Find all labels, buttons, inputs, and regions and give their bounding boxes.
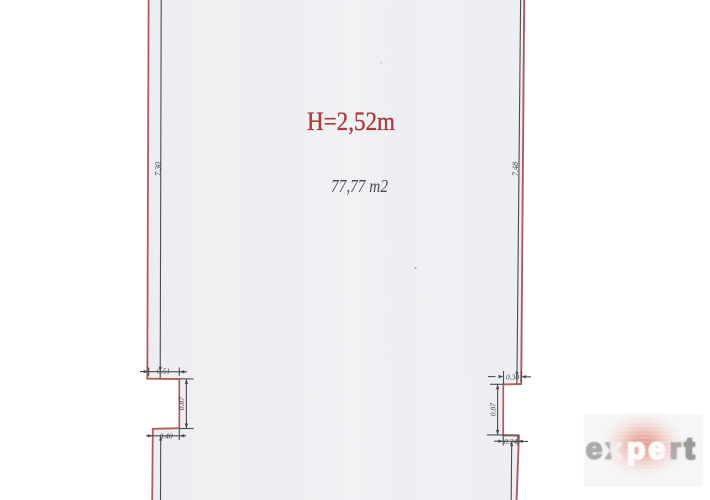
svg-text:p: p <box>627 433 645 466</box>
svg-text:7.48: 7.48 <box>511 162 520 176</box>
svg-text:7.30: 7.30 <box>154 162 163 176</box>
svg-text:77,77 m2: 77,77 m2 <box>331 176 388 196</box>
svg-text:0.87: 0.87 <box>177 397 186 410</box>
svg-text:e: e <box>649 433 666 466</box>
svg-text:t: t <box>685 433 695 466</box>
svg-text:0.87: 0.87 <box>488 403 497 416</box>
svg-text:H=2,52m: H=2,52m <box>307 107 395 136</box>
svg-text:r: r <box>670 433 682 466</box>
svg-text:0.51: 0.51 <box>157 366 170 375</box>
svg-text:0.30: 0.30 <box>506 373 519 382</box>
svg-text:e: e <box>586 433 603 466</box>
